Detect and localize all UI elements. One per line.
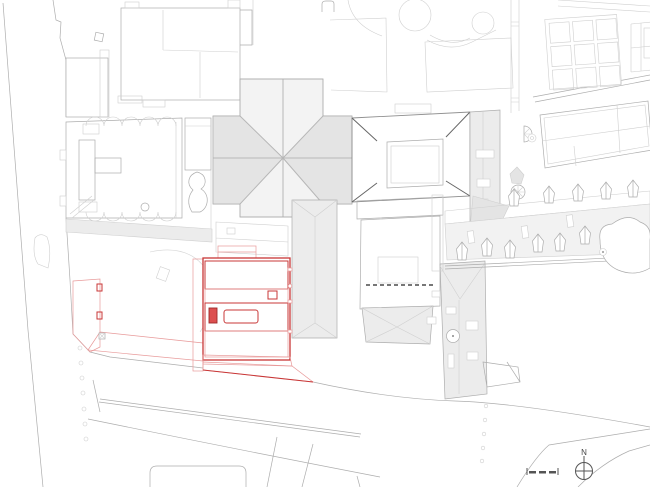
roof-hatch-band — [357, 197, 443, 219]
tree-dots-west — [78, 346, 88, 441]
tree-dots-center — [480, 404, 488, 463]
building-east-wing — [470, 110, 532, 231]
roof-dash-row — [366, 284, 433, 286]
site-plan: N — [0, 0, 650, 487]
tree-canopy-circle — [399, 0, 431, 31]
building-greenhouse — [528, 101, 650, 168]
north-label: N — [581, 448, 587, 457]
tower-wing — [440, 261, 487, 399]
tree-blob-west — [34, 235, 50, 268]
garden-north — [330, 0, 519, 113]
highlighted-building — [203, 258, 292, 366]
red-ladder-strip — [193, 259, 203, 371]
highlight-red-zone — [73, 246, 313, 382]
passage-roof — [66, 219, 212, 242]
tree-cluster-blob — [600, 217, 650, 273]
red-boundary-line — [203, 370, 313, 382]
garden-grid — [545, 14, 622, 90]
ramp-hatched — [483, 362, 520, 387]
roof-object-dark — [209, 308, 217, 323]
tree-row-upper — [509, 180, 639, 206]
plaza-door-marker — [97, 284, 102, 291]
plaza-door-marker — [97, 312, 102, 319]
tree-conifer — [510, 167, 524, 184]
wall-ladder-strip — [432, 195, 443, 271]
building-annex-east — [185, 118, 211, 230]
building-cloister — [60, 117, 182, 221]
building-courtyard-striped — [352, 112, 470, 219]
scale-bar — [527, 468, 558, 475]
north-arrow-icon: N — [576, 448, 593, 480]
plaza-strip-west — [73, 279, 100, 352]
tree-canopy-circle — [472, 12, 494, 34]
site-plan-canvas: N — [0, 0, 650, 487]
well-circle — [141, 203, 149, 211]
